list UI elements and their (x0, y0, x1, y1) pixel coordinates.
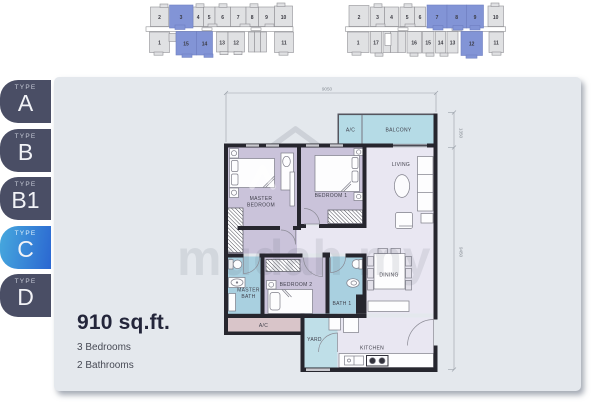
svg-text:5: 5 (208, 15, 211, 21)
svg-text:9: 9 (265, 15, 268, 21)
svg-text:A/C: A/C (259, 323, 268, 329)
svg-text:13: 13 (450, 41, 456, 47)
svg-text:MASTER: MASTER (237, 288, 260, 294)
svg-text:8: 8 (455, 15, 458, 21)
svg-text:6: 6 (419, 15, 422, 21)
svg-text:17: 17 (373, 41, 379, 47)
svg-text:BEDROOM: BEDROOM (247, 203, 275, 209)
svg-text:12: 12 (469, 42, 475, 48)
svg-text:LIVING: LIVING (392, 162, 410, 168)
svg-text:16: 16 (411, 41, 417, 47)
svg-text:YARD: YARD (307, 337, 322, 343)
svg-text:11: 11 (281, 41, 287, 47)
svg-text:12: 12 (233, 41, 239, 47)
svg-text:14: 14 (438, 41, 444, 47)
svg-text:9050: 9050 (322, 87, 333, 92)
svg-text:1: 1 (158, 41, 161, 47)
svg-text:5: 5 (406, 15, 409, 21)
svg-text:KITCHEN: KITCHEN (360, 346, 384, 352)
svg-text:15: 15 (183, 42, 189, 48)
svg-text:9: 9 (474, 15, 477, 21)
svg-text:4: 4 (390, 15, 393, 21)
svg-text:2: 2 (158, 15, 161, 21)
svg-text:BEDROOM 1: BEDROOM 1 (315, 193, 348, 199)
svg-text:2: 2 (358, 15, 361, 21)
svg-text:1: 1 (357, 41, 360, 47)
svg-text:13: 13 (219, 41, 225, 47)
svg-text:DINING: DINING (379, 273, 398, 279)
svg-text:3: 3 (180, 15, 183, 21)
svg-text:10: 10 (281, 15, 287, 21)
svg-text:BEDROOM 2: BEDROOM 2 (280, 282, 313, 288)
svg-text:BATH: BATH (241, 294, 255, 300)
svg-text:10: 10 (493, 15, 499, 21)
svg-text:MASTER: MASTER (250, 196, 273, 202)
svg-text:BALCONY: BALCONY (386, 128, 412, 134)
svg-text:15: 15 (425, 41, 431, 47)
svg-text:6: 6 (221, 15, 224, 21)
svg-text:4: 4 (197, 15, 200, 21)
svg-text:3: 3 (376, 15, 379, 21)
svg-text:1350: 1350 (459, 128, 464, 139)
svg-text:7: 7 (237, 15, 240, 21)
svg-text:11: 11 (494, 41, 500, 47)
svg-text:8: 8 (251, 15, 254, 21)
svg-text:BATH 1: BATH 1 (333, 301, 352, 307)
svg-text:9450: 9450 (459, 247, 464, 258)
svg-text:A/C: A/C (346, 128, 355, 134)
svg-text:7: 7 (436, 15, 439, 21)
svg-text:14: 14 (202, 42, 208, 48)
